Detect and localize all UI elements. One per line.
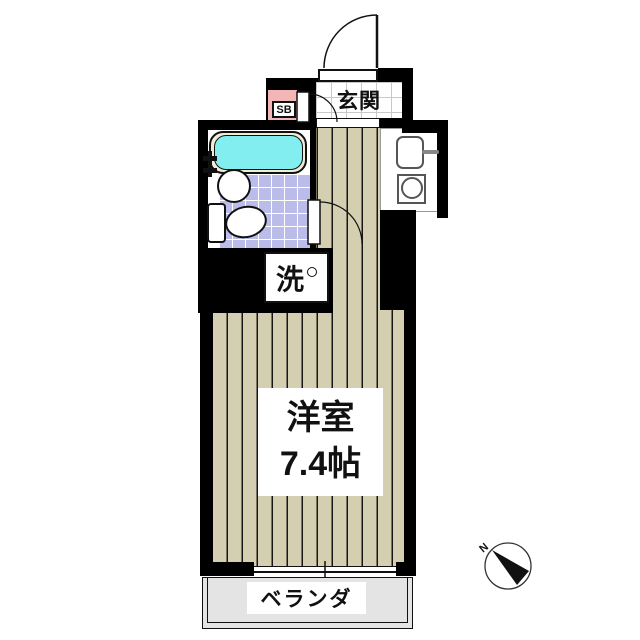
bathtub-water xyxy=(214,135,303,170)
toilet-tank xyxy=(207,203,226,243)
compass-icon: N xyxy=(477,541,531,589)
room-name: 洋室 xyxy=(287,396,355,442)
right-wall xyxy=(404,300,416,576)
left-wall xyxy=(200,255,213,576)
entrance-door-sill xyxy=(318,69,378,82)
kitchen-right-wall xyxy=(437,120,448,218)
laundry-tap-icon xyxy=(307,267,317,277)
entrance-wall-step xyxy=(378,68,413,80)
laundry-space: 洗 xyxy=(264,252,329,303)
bottom-right-wall xyxy=(396,562,416,576)
balcony-label: ベランダ xyxy=(247,582,366,614)
room-label-box: 洋室 7.4帖 xyxy=(258,388,383,496)
kitchen-sink xyxy=(396,136,424,169)
wall-below-kitchen xyxy=(380,210,416,310)
bottom-left-wall xyxy=(200,562,254,576)
compass-north-label: N xyxy=(477,541,491,555)
entrance-inner-sill xyxy=(316,118,380,128)
entrance-door-arc xyxy=(324,15,377,68)
laundry-label: 洗 xyxy=(276,258,304,298)
entrance-area: 玄関 xyxy=(316,82,402,118)
stove-burner-icon xyxy=(401,177,423,199)
balcony-window-glass-line xyxy=(254,571,396,573)
room-size: 7.4帖 xyxy=(280,442,361,488)
bathroom-sink xyxy=(217,169,251,203)
floor-plan: 玄関 SB 洗 ベランダ 洋室 7.4帖 xyxy=(0,0,640,640)
shoe-box-label: SB xyxy=(272,101,296,118)
entrance-label: 玄関 xyxy=(337,85,381,115)
